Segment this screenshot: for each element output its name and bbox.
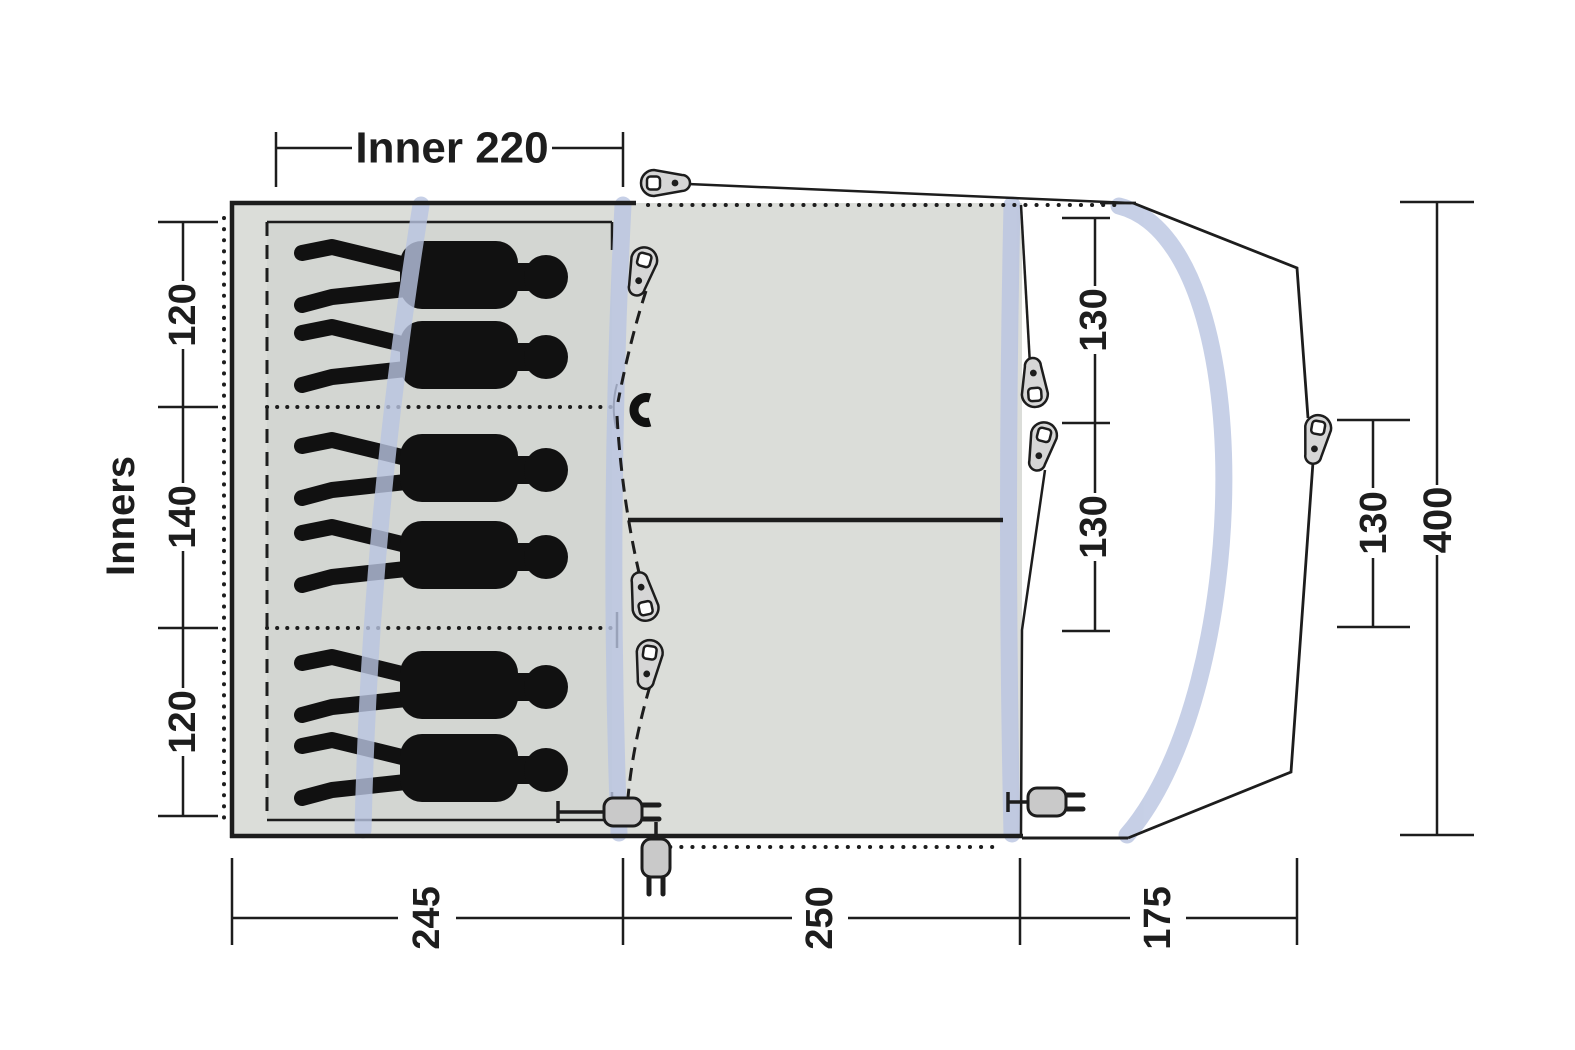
- dim-total-width: 400: [1400, 202, 1474, 835]
- inners-label: Inners: [99, 456, 143, 576]
- tent-peg-icon: [1023, 420, 1060, 474]
- dim-right-front: 130 130: [1062, 218, 1115, 631]
- tent-peg-icon: [1299, 413, 1333, 466]
- tent-peg-icon: [641, 170, 690, 196]
- dim-label-bottom-inner: 245: [406, 886, 448, 949]
- tent-floorplan-diagram: Inner 220 120 140 120 Inners 130 130 130…: [0, 0, 1575, 1050]
- tent-peg-icon: [1019, 357, 1048, 408]
- dim-label-right-canopy: 130: [1353, 491, 1395, 554]
- dim-left-column: 120 140 120 Inners: [99, 222, 218, 816]
- dim-label-right-front-top: 130: [1073, 288, 1115, 351]
- pole-arc: [614, 205, 623, 833]
- canopy-outline: [1022, 203, 1313, 838]
- dim-right-canopy: 130: [1337, 420, 1410, 627]
- pole-arc: [1119, 206, 1224, 835]
- dim-label-left-bottom: 120: [162, 690, 204, 753]
- dim-label-right-front-bottom: 130: [1073, 495, 1115, 558]
- dim-label-left-middle: 140: [162, 485, 204, 548]
- dim-label-total-width: 400: [1416, 487, 1460, 554]
- guy-line: [688, 184, 1131, 203]
- dim-label-inner-width: Inner 220: [355, 124, 548, 173]
- dim-label-bottom-canopy: 175: [1137, 886, 1179, 949]
- pole-arc: [1009, 205, 1013, 834]
- dim-label-left-top: 120: [162, 283, 204, 346]
- dim-label-bottom-living: 250: [799, 886, 841, 949]
- dim-inner-width: Inner 220: [276, 124, 623, 188]
- dim-bottom-row: 245 250 175: [232, 858, 1297, 950]
